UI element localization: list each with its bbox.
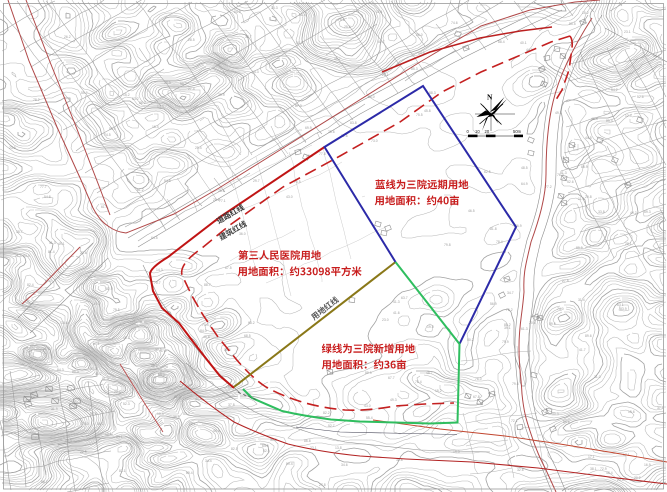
- svg-text:88.3: 88.3: [429, 91, 436, 95]
- svg-text:39.3: 39.3: [93, 302, 100, 306]
- svg-text:79.8: 79.8: [444, 243, 451, 247]
- svg-text:14.3: 14.3: [156, 268, 163, 272]
- svg-text:88.7: 88.7: [204, 283, 211, 287]
- svg-text:48.4: 48.4: [591, 117, 598, 121]
- svg-text:74.6: 74.6: [451, 21, 458, 25]
- svg-text:83.8: 83.8: [350, 121, 357, 125]
- svg-text:62.7: 62.7: [378, 40, 385, 44]
- svg-text:82.5: 82.5: [231, 447, 238, 451]
- svg-text:82.2: 82.2: [323, 411, 330, 415]
- svg-text:49.1: 49.1: [58, 242, 65, 246]
- svg-text:45.8: 45.8: [424, 109, 431, 113]
- svg-text:40.1: 40.1: [520, 41, 527, 45]
- svg-text:28.1: 28.1: [625, 242, 632, 246]
- svg-text:83.9: 83.9: [620, 307, 627, 311]
- svg-text:15.6: 15.6: [628, 410, 635, 414]
- svg-text:36.3: 36.3: [97, 422, 104, 426]
- svg-text:10.0: 10.0: [164, 81, 171, 85]
- svg-text:53.8: 53.8: [90, 412, 97, 416]
- svg-text:64.9: 64.9: [521, 182, 528, 186]
- svg-text:83.1: 83.1: [119, 469, 126, 473]
- svg-text:80.0: 80.0: [72, 370, 79, 374]
- svg-text:41.3: 41.3: [49, 241, 56, 245]
- svg-text:85.2: 85.2: [151, 364, 158, 368]
- svg-text:49.3: 49.3: [390, 398, 397, 402]
- svg-text:67.1: 67.1: [93, 342, 100, 346]
- svg-text:85.4: 85.4: [606, 119, 613, 123]
- svg-text:27.5: 27.5: [562, 279, 569, 283]
- svg-text:50.3: 50.3: [552, 412, 559, 416]
- svg-text:55.3: 55.3: [65, 439, 72, 443]
- svg-text:73.0: 73.0: [371, 139, 378, 143]
- svg-text:38.7: 38.7: [245, 35, 252, 39]
- svg-text:59.6: 59.6: [549, 322, 556, 326]
- svg-text:54.8: 54.8: [164, 179, 171, 183]
- svg-text:61.2: 61.2: [137, 188, 144, 192]
- svg-text:29.1: 29.1: [189, 422, 196, 426]
- svg-text:26.2: 26.2: [64, 35, 71, 39]
- svg-text:15.2: 15.2: [123, 93, 130, 97]
- svg-text:88.7: 88.7: [41, 480, 48, 484]
- svg-text:63.1: 63.1: [617, 303, 624, 307]
- svg-text:19.5: 19.5: [427, 325, 434, 329]
- svg-text:31.4: 31.4: [578, 298, 585, 302]
- svg-text:36.0: 36.0: [239, 232, 246, 236]
- svg-text:25.6: 25.6: [344, 25, 351, 29]
- svg-text:25.4: 25.4: [195, 146, 202, 150]
- svg-text:89.9: 89.9: [365, 371, 372, 375]
- svg-text:88.2: 88.2: [504, 323, 511, 327]
- svg-text:53.2: 53.2: [132, 97, 139, 101]
- svg-text:19.0: 19.0: [453, 450, 460, 454]
- svg-text:74.5: 74.5: [104, 133, 111, 137]
- svg-text:29.9: 29.9: [218, 93, 225, 97]
- svg-text:77.2: 77.2: [545, 185, 552, 189]
- svg-text:37.1: 37.1: [657, 406, 664, 410]
- svg-text:49.2: 49.2: [630, 211, 637, 215]
- svg-text:34.7: 34.7: [507, 291, 514, 295]
- svg-text:16.6: 16.6: [61, 321, 68, 325]
- svg-text:64.5: 64.5: [151, 236, 158, 240]
- svg-text:89.6: 89.6: [563, 420, 570, 424]
- svg-text:52.6: 52.6: [567, 180, 574, 184]
- svg-text:75.8: 75.8: [338, 18, 345, 22]
- svg-text:64.5: 64.5: [262, 444, 269, 448]
- svg-text:89.4: 89.4: [186, 471, 193, 475]
- svg-text:52.6: 52.6: [637, 95, 644, 99]
- svg-text:52.7: 52.7: [328, 424, 335, 428]
- svg-text:84.4: 84.4: [23, 254, 30, 258]
- svg-text:54.8: 54.8: [44, 195, 51, 199]
- svg-text:16.9: 16.9: [644, 463, 651, 467]
- svg-text:36.9: 36.9: [173, 415, 180, 419]
- svg-text:81.0: 81.0: [102, 377, 109, 381]
- svg-text:54.2: 54.2: [611, 88, 618, 92]
- svg-text:61.0: 61.0: [174, 395, 181, 399]
- svg-text:28.1: 28.1: [382, 73, 389, 77]
- svg-text:44.5: 44.5: [585, 136, 592, 140]
- svg-text:29.8: 29.8: [585, 195, 592, 199]
- svg-text:21.4: 21.4: [15, 254, 22, 258]
- svg-text:62.5: 62.5: [484, 170, 491, 174]
- svg-text:48.4: 48.4: [606, 471, 613, 475]
- svg-text:67.5: 67.5: [225, 266, 232, 270]
- svg-text:15.2: 15.2: [435, 389, 442, 393]
- svg-text:10.4: 10.4: [157, 412, 164, 416]
- svg-text:21.3: 21.3: [43, 347, 50, 351]
- svg-text:17.1: 17.1: [588, 455, 595, 459]
- svg-text:23.1: 23.1: [624, 30, 631, 34]
- svg-text:25.6: 25.6: [218, 189, 225, 193]
- svg-text:67.7: 67.7: [388, 376, 395, 380]
- svg-text:40.7: 40.7: [334, 57, 341, 61]
- svg-text:44.4: 44.4: [213, 429, 220, 433]
- svg-text:75.9: 75.9: [502, 340, 509, 344]
- svg-text:84.3: 84.3: [57, 368, 64, 372]
- svg-text:77.7: 77.7: [40, 185, 47, 189]
- svg-text:59.0: 59.0: [109, 127, 116, 131]
- svg-text:34.6: 34.6: [341, 463, 348, 467]
- svg-text:55.4: 55.4: [366, 416, 373, 420]
- svg-text:70.7: 70.7: [154, 281, 161, 285]
- svg-text:76.0: 76.0: [475, 377, 482, 381]
- svg-text:11.4: 11.4: [376, 10, 382, 14]
- svg-text:88.4: 88.4: [498, 40, 505, 44]
- svg-text:52.5: 52.5: [263, 449, 270, 453]
- svg-text:61.3: 61.3: [521, 327, 528, 331]
- svg-text:23.0: 23.0: [382, 318, 389, 322]
- svg-text:46.2: 46.2: [95, 372, 102, 376]
- svg-text:51.2: 51.2: [296, 41, 303, 45]
- svg-text:13.8: 13.8: [335, 446, 342, 450]
- svg-text:29.7: 29.7: [253, 179, 260, 183]
- svg-text:75.0: 75.0: [82, 422, 89, 426]
- svg-text:14.3: 14.3: [252, 70, 259, 74]
- svg-text:77.1: 77.1: [219, 199, 226, 203]
- svg-text:89.9: 89.9: [576, 246, 583, 250]
- svg-text:51.0: 51.0: [90, 367, 97, 371]
- svg-text:11.9: 11.9: [578, 197, 584, 201]
- svg-text:78.4: 78.4: [496, 240, 503, 244]
- svg-text:38.7: 38.7: [16, 230, 23, 234]
- svg-text:20.4: 20.4: [114, 390, 121, 394]
- svg-text:70.4: 70.4: [202, 323, 209, 327]
- svg-text:81.4: 81.4: [48, 250, 55, 254]
- svg-text:55.5: 55.5: [569, 22, 576, 26]
- svg-text:23.8: 23.8: [9, 146, 16, 150]
- svg-text:68.5: 68.5: [244, 334, 251, 338]
- svg-text:41.6: 41.6: [393, 311, 400, 315]
- svg-text:79.5: 79.5: [113, 308, 120, 312]
- svg-text:46.5: 46.5: [468, 209, 475, 213]
- svg-text:37.9: 37.9: [155, 348, 162, 352]
- svg-text:31.0: 31.0: [594, 375, 601, 379]
- svg-text:56.9: 56.9: [490, 302, 497, 306]
- svg-text:20: 20: [485, 129, 490, 134]
- svg-text:27.8: 27.8: [319, 483, 326, 487]
- svg-text:52.3: 52.3: [123, 402, 130, 406]
- svg-text:10: 10: [475, 129, 480, 134]
- svg-text:86.8: 86.8: [304, 439, 311, 443]
- svg-text:28.6: 28.6: [328, 130, 335, 134]
- svg-text:69.3: 69.3: [644, 210, 651, 214]
- svg-text:32.6: 32.6: [517, 468, 524, 472]
- svg-text:N: N: [487, 93, 493, 102]
- svg-text:28.5: 28.5: [188, 38, 195, 42]
- svg-text:20.2: 20.2: [634, 476, 641, 480]
- svg-text:45.7: 45.7: [426, 371, 433, 375]
- svg-text:50m: 50m: [513, 129, 522, 134]
- svg-text:59.4: 59.4: [286, 462, 293, 466]
- svg-text:27.4: 27.4: [188, 87, 195, 91]
- svg-text:14.3: 14.3: [157, 105, 164, 109]
- svg-text:74.0: 74.0: [557, 307, 564, 311]
- svg-text:34.4: 34.4: [205, 459, 212, 463]
- svg-text:67.8: 67.8: [473, 395, 480, 399]
- svg-text:72.1: 72.1: [511, 419, 518, 423]
- svg-text:88.9: 88.9: [581, 165, 588, 169]
- svg-text:41.7: 41.7: [579, 348, 586, 352]
- svg-text:55.9: 55.9: [81, 91, 88, 95]
- svg-text:77.8: 77.8: [319, 152, 326, 156]
- svg-text:55.0: 55.0: [158, 373, 165, 377]
- svg-text:89.6: 89.6: [585, 334, 592, 338]
- svg-text:50.2: 50.2: [180, 82, 187, 86]
- svg-text:78.2: 78.2: [33, 98, 40, 102]
- svg-text:86.2: 86.2: [139, 101, 146, 105]
- svg-text:12.4: 12.4: [625, 114, 632, 118]
- svg-text:10.1: 10.1: [105, 432, 112, 436]
- svg-text:82.9: 82.9: [106, 287, 113, 291]
- svg-text:82.4: 82.4: [27, 283, 34, 287]
- svg-text:76.2: 76.2: [506, 308, 513, 312]
- svg-text:78.4: 78.4: [415, 380, 422, 384]
- svg-text:33.8: 33.8: [598, 210, 605, 214]
- svg-text:69.9: 69.9: [305, 126, 312, 130]
- svg-text:45.8: 45.8: [203, 335, 210, 339]
- svg-text:35.3: 35.3: [271, 6, 278, 10]
- svg-text:38.1: 38.1: [590, 467, 597, 471]
- svg-text:26.0: 26.0: [416, 33, 423, 37]
- svg-text:51.4: 51.4: [299, 13, 306, 17]
- svg-text:64.9: 64.9: [234, 10, 241, 14]
- svg-text:43.0: 43.0: [286, 195, 293, 199]
- svg-text:43.0: 43.0: [364, 404, 371, 408]
- svg-text:16.4: 16.4: [152, 125, 159, 129]
- svg-text:37.8: 37.8: [228, 403, 235, 407]
- svg-text:76.0: 76.0: [557, 173, 564, 177]
- svg-text:53.2: 53.2: [183, 412, 190, 416]
- svg-text:81.8: 81.8: [490, 227, 497, 231]
- svg-text:87.3: 87.3: [295, 104, 302, 108]
- svg-text:19.1: 19.1: [123, 336, 130, 340]
- svg-text:84.1: 84.1: [116, 435, 123, 439]
- svg-text:48.5: 48.5: [521, 166, 528, 170]
- svg-text:15.2: 15.2: [582, 11, 589, 15]
- svg-text:22.5: 22.5: [80, 450, 87, 454]
- svg-text:75.5: 75.5: [416, 113, 423, 117]
- svg-text:50.2: 50.2: [467, 338, 474, 342]
- svg-text:84.0: 84.0: [200, 329, 207, 333]
- svg-text:68.2: 68.2: [248, 321, 255, 325]
- svg-text:31.9: 31.9: [51, 407, 58, 411]
- svg-text:41.3: 41.3: [393, 300, 400, 304]
- svg-text:63.7: 63.7: [401, 296, 408, 300]
